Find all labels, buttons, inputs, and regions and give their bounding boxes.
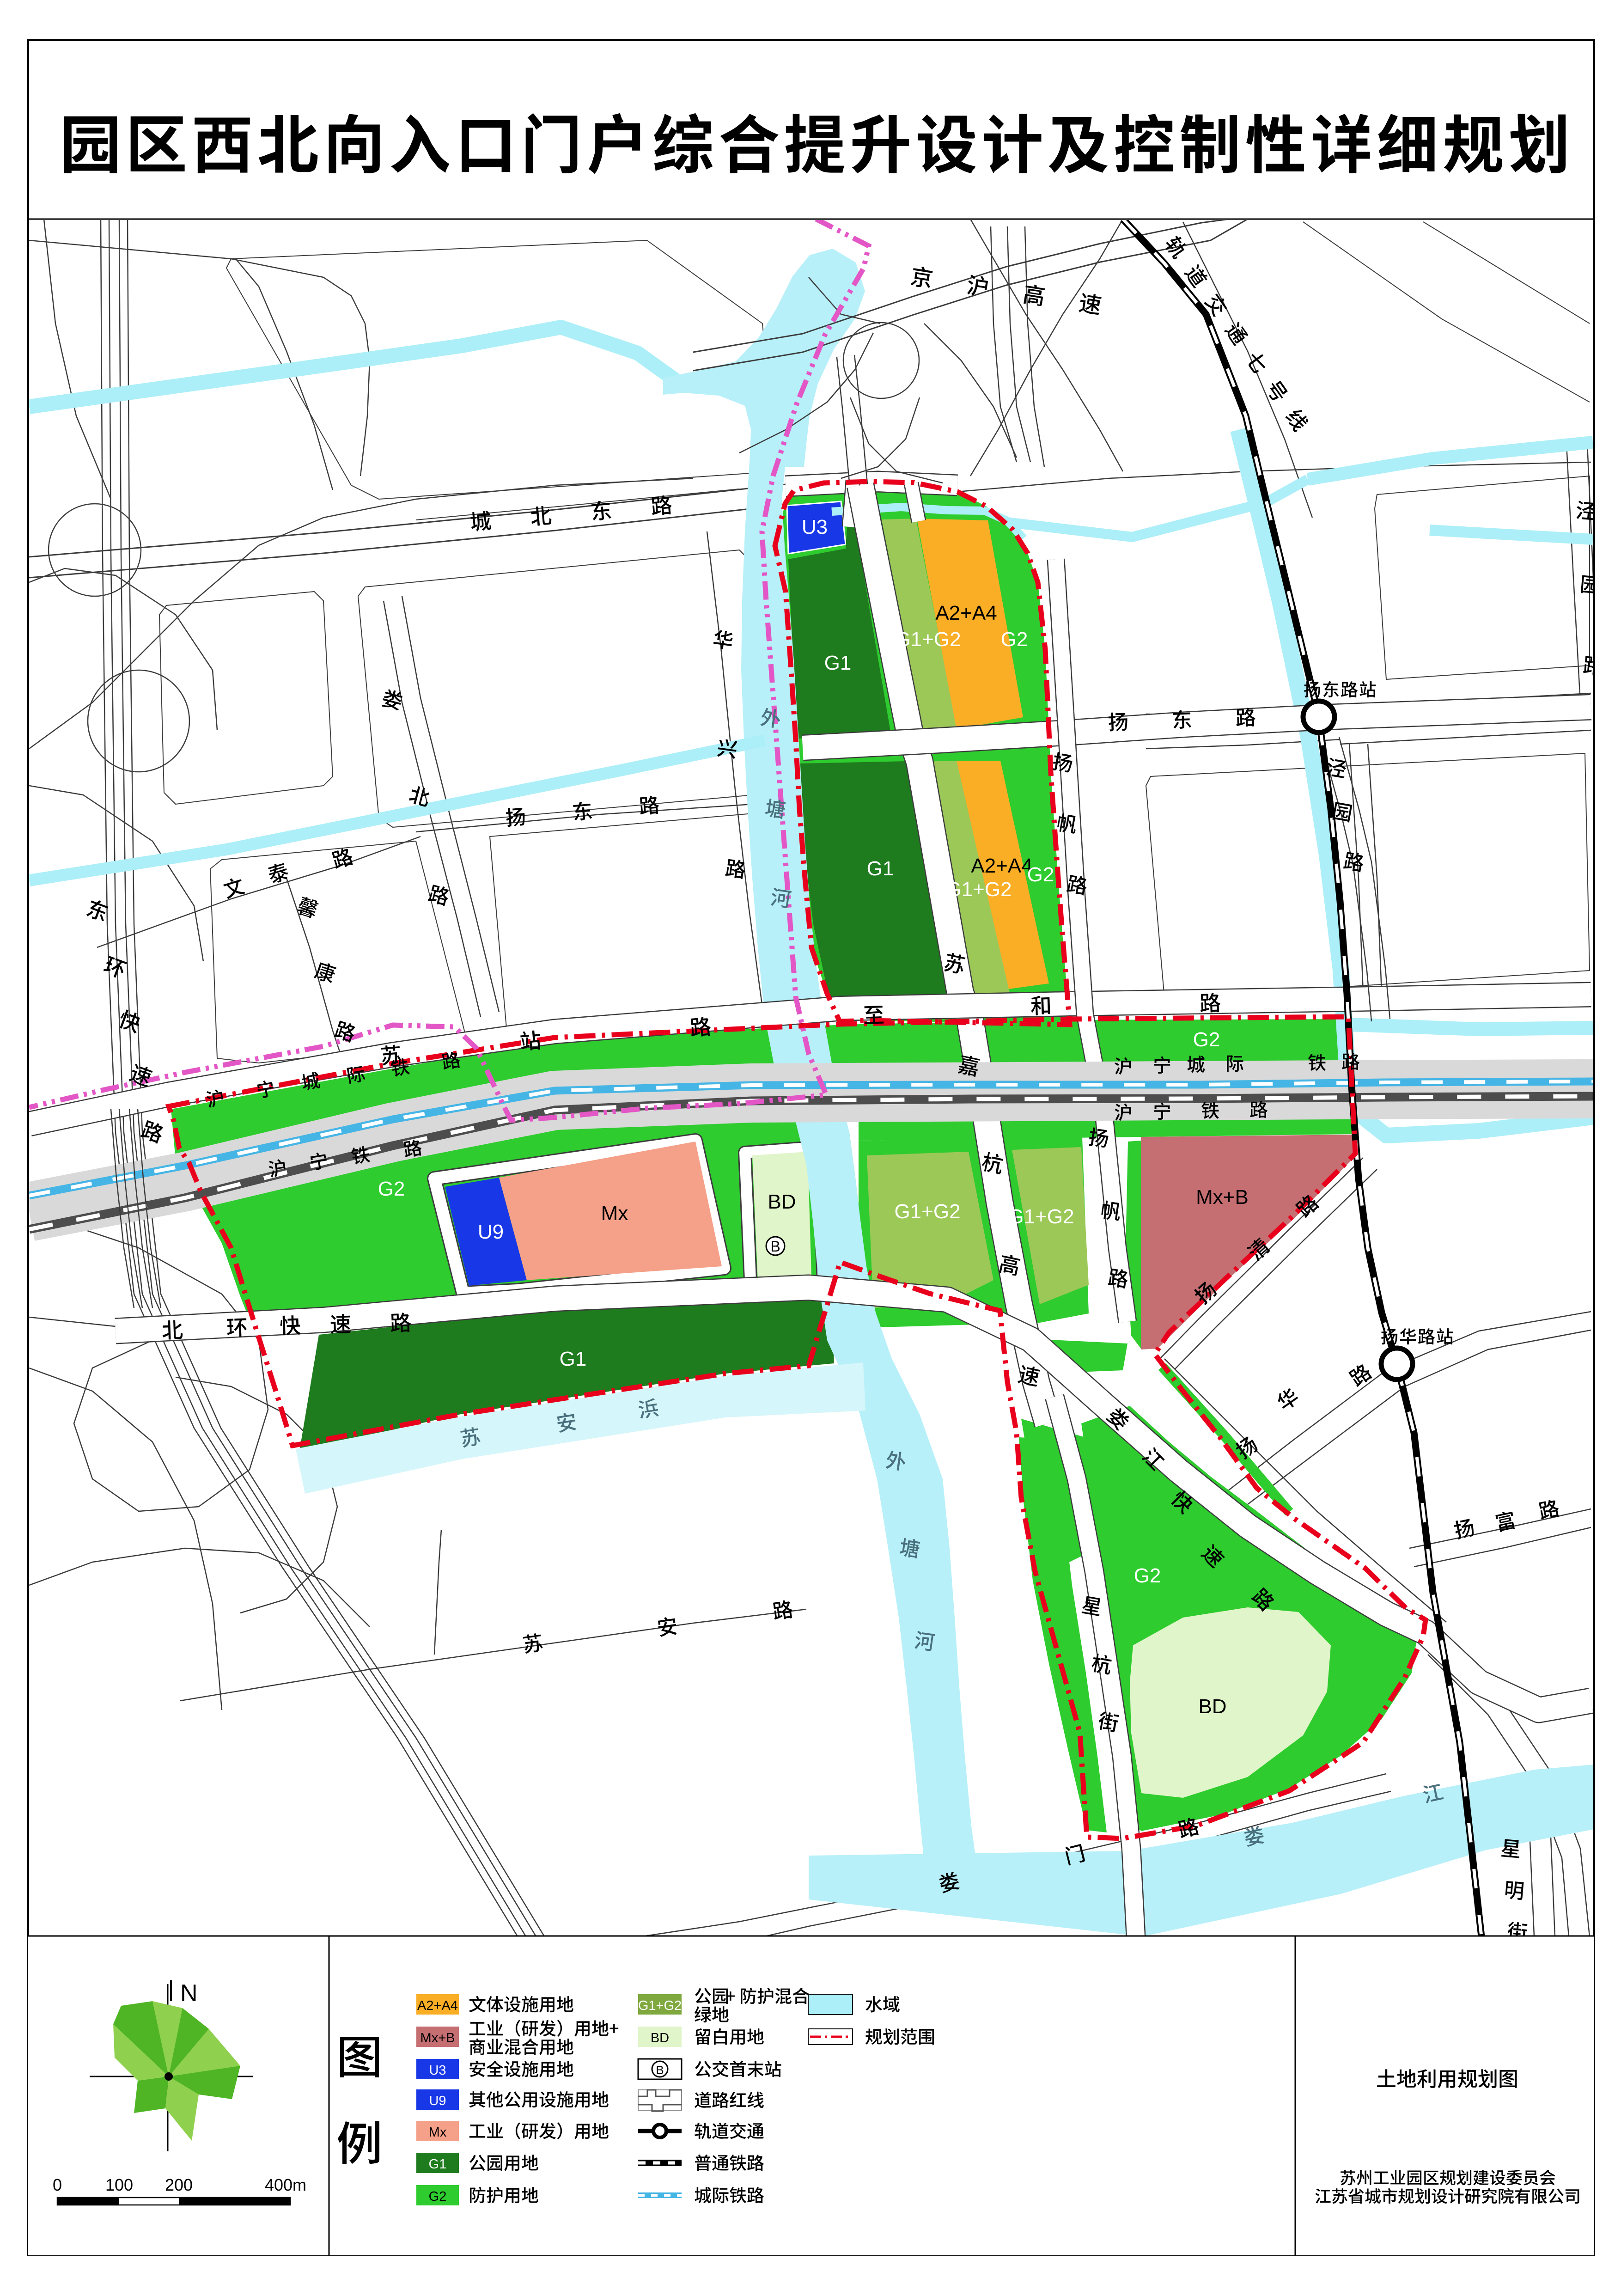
svg-text:N: N [180, 1980, 198, 2007]
svg-text:G1+G2: G1+G2 [894, 1200, 960, 1223]
svg-text:A2+A4: A2+A4 [935, 602, 997, 624]
svg-text:G2: G2 [378, 1178, 405, 1200]
svg-text:BD: BD [1198, 1695, 1226, 1718]
svg-text:G1+G2: G1+G2 [895, 628, 961, 651]
svg-text:G1+G2: G1+G2 [945, 878, 1012, 901]
svg-text:100: 100 [105, 2175, 133, 2194]
svg-text:G2: G2 [429, 2189, 447, 2204]
svg-text:Mx+B: Mx+B [420, 2031, 455, 2046]
svg-text:G1: G1 [560, 1348, 587, 1370]
svg-text:A2+A4: A2+A4 [971, 855, 1032, 877]
svg-text:U9: U9 [429, 2094, 446, 2108]
svg-text:G2: G2 [1001, 628, 1028, 651]
svg-text:G2: G2 [1134, 1564, 1161, 1587]
svg-text:BD: BD [651, 2031, 669, 2046]
svg-text:BD: BD [768, 1191, 796, 1213]
svg-text:Mx: Mx [429, 2125, 447, 2140]
svg-text:G1: G1 [429, 2157, 447, 2172]
svg-text:G1: G1 [867, 857, 894, 880]
svg-text:400m: 400m [265, 2175, 306, 2194]
svg-text:G1+G2: G1+G2 [1008, 1205, 1074, 1228]
svg-text:U9: U9 [478, 1221, 504, 1243]
svg-text:G1+G2: G1+G2 [638, 1998, 682, 2013]
svg-text:U3: U3 [802, 516, 828, 538]
svg-text:Mx: Mx [601, 1202, 628, 1225]
svg-text:B: B [770, 1238, 780, 1255]
svg-text:B: B [656, 2063, 664, 2077]
svg-text:0: 0 [53, 2175, 62, 2194]
svg-text:A2+A4: A2+A4 [417, 1998, 458, 2013]
svg-text:200: 200 [165, 2175, 193, 2194]
svg-text:G2: G2 [1193, 1028, 1220, 1051]
svg-text:G1: G1 [824, 652, 852, 674]
svg-text:U3: U3 [429, 2063, 446, 2078]
svg-text:G2: G2 [1027, 863, 1054, 886]
svg-text:Mx+B: Mx+B [1196, 1186, 1249, 1209]
